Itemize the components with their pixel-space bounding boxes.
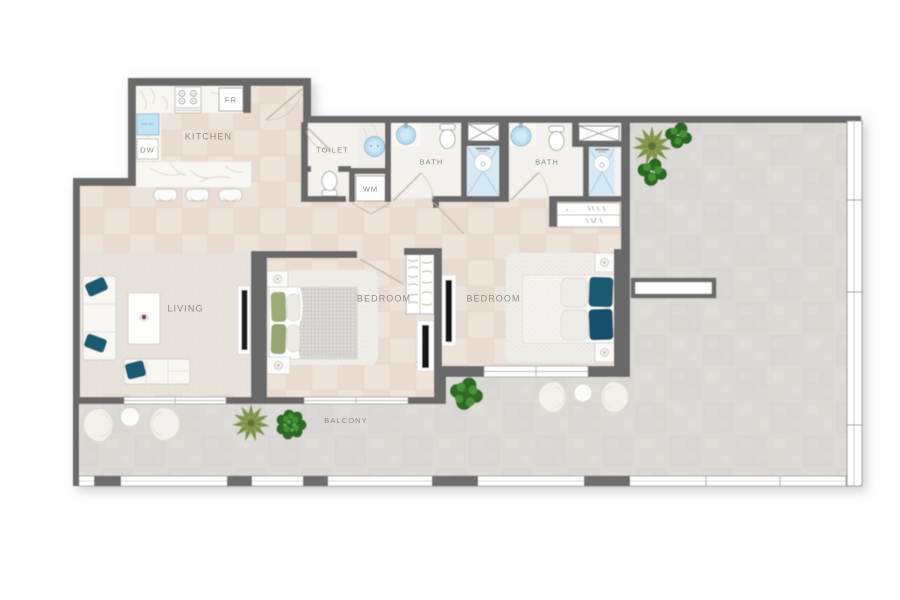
svg-text:DW: DW xyxy=(140,146,155,155)
svg-text:BATH: BATH xyxy=(535,158,559,167)
svg-text:BEDROOM: BEDROOM xyxy=(357,294,411,304)
svg-text:BATH: BATH xyxy=(420,158,444,167)
svg-text:LIVING: LIVING xyxy=(167,304,203,314)
svg-text:TOILET: TOILET xyxy=(316,146,349,155)
svg-text:BALCONY: BALCONY xyxy=(324,416,368,425)
svg-text:BEDROOM: BEDROOM xyxy=(466,294,520,304)
svg-text:KITCHEN: KITCHEN xyxy=(185,132,232,142)
svg-text:WM: WM xyxy=(363,185,379,194)
svg-text:FR: FR xyxy=(225,96,237,105)
